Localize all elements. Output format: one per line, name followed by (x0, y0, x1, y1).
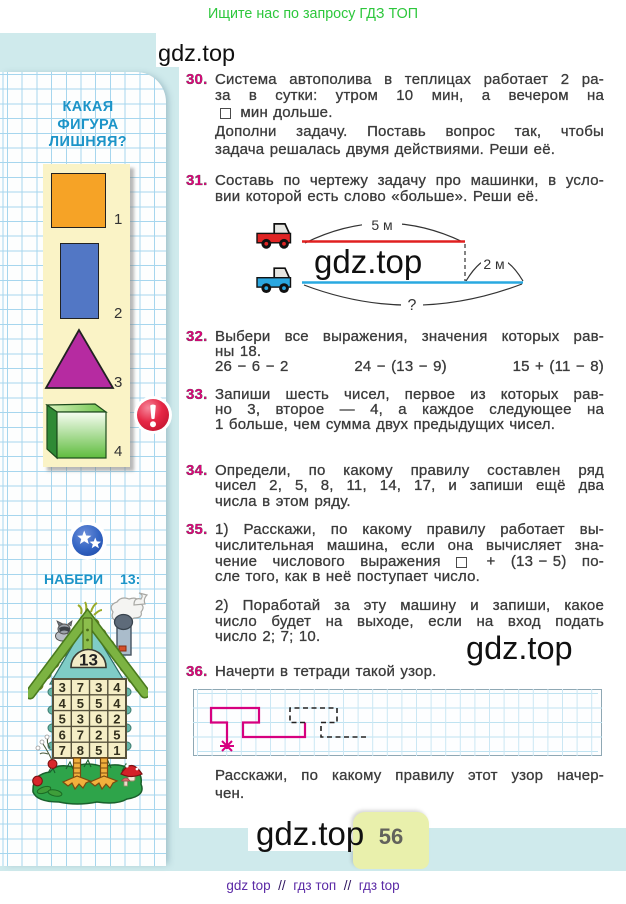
svg-text:5: 5 (59, 712, 66, 727)
svg-text:3: 3 (59, 680, 66, 695)
svg-text:4: 4 (113, 680, 121, 695)
svg-text:?: ? (408, 297, 417, 314)
svg-text:4: 4 (113, 696, 121, 711)
svg-text:7: 7 (77, 680, 84, 695)
svg-text:2: 2 (113, 712, 120, 727)
svg-text:1: 1 (113, 743, 120, 758)
svg-text:4: 4 (59, 696, 67, 711)
svg-text:5: 5 (113, 727, 120, 742)
svg-text:2: 2 (95, 727, 102, 742)
svg-text:5: 5 (77, 696, 84, 711)
svg-text:5 м: 5 м (371, 217, 392, 233)
svg-text:8: 8 (77, 743, 84, 758)
svg-text:5: 5 (95, 696, 102, 711)
svg-text:5: 5 (95, 743, 102, 758)
svg-text:6: 6 (59, 727, 66, 742)
svg-text:7: 7 (59, 743, 66, 758)
svg-text:2 м: 2 м (483, 256, 504, 272)
svg-text:3: 3 (77, 712, 84, 727)
svg-text:3: 3 (95, 680, 102, 695)
svg-text:6: 6 (95, 712, 102, 727)
svg-text:13: 13 (79, 651, 98, 670)
svg-text:7: 7 (77, 727, 84, 742)
